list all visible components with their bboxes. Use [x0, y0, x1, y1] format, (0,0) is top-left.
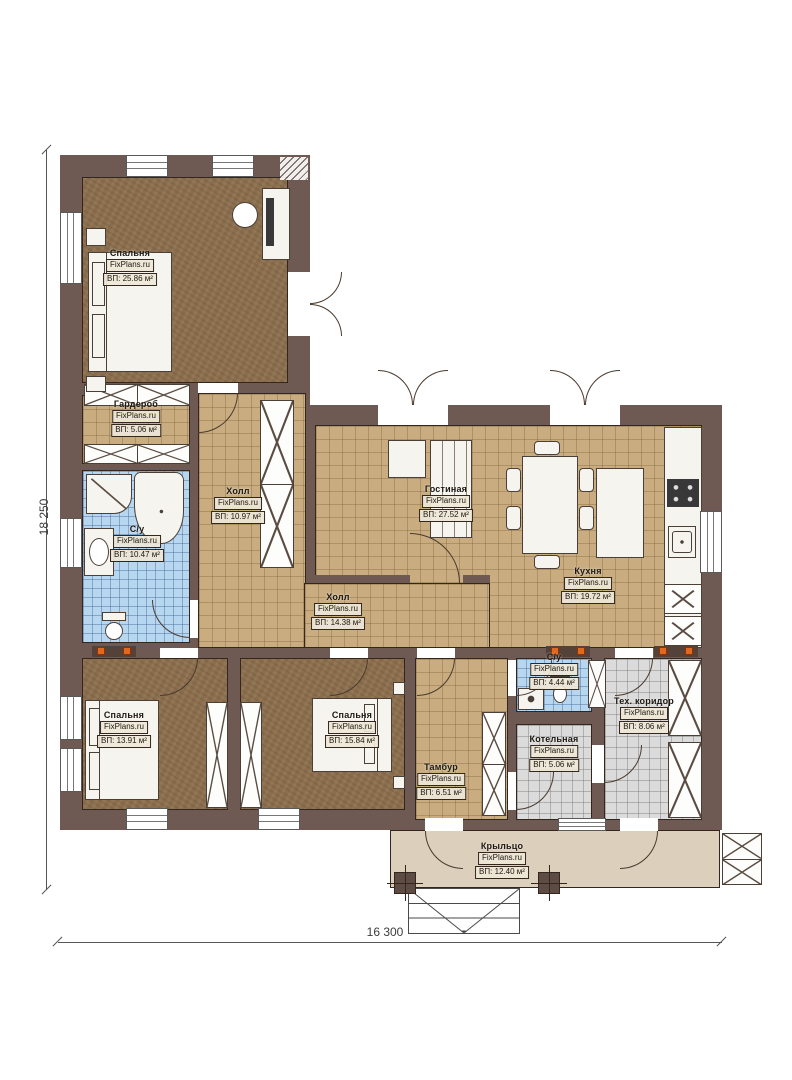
window [126, 155, 168, 177]
window [60, 518, 82, 568]
tv-unit [388, 440, 426, 478]
room-label-boiler-room: Котельная FixPlans.ru ВП: 5.06 м² [529, 734, 579, 772]
dimension-line-bottom [58, 942, 722, 943]
radiator [92, 646, 136, 657]
room-area: ВП: 12.40 м² [475, 866, 529, 879]
toilet-tank [102, 612, 126, 621]
door-opening [190, 600, 198, 638]
chair [506, 506, 521, 530]
window [258, 808, 300, 830]
closet [482, 712, 506, 816]
wall-living-hall-right [463, 575, 490, 583]
closet [240, 702, 262, 808]
closet [206, 702, 228, 808]
french-door-opening [550, 405, 620, 425]
watermark: FixPlans.ru [112, 410, 160, 423]
chair [534, 555, 560, 569]
room-area: ВП: 5.06 м² [529, 759, 579, 772]
nightstand [393, 776, 405, 789]
watermark: FixPlans.ru [478, 852, 526, 865]
pillow [89, 752, 100, 790]
room-name: Крыльцо [475, 841, 529, 851]
door-opening [615, 648, 653, 658]
appliance [664, 584, 702, 614]
door-opening [417, 648, 455, 658]
room-area: ВП: 19.72 м² [561, 591, 615, 604]
door-arc [378, 370, 413, 405]
kitchen-island [596, 468, 644, 558]
window [60, 212, 82, 284]
door-arc [310, 272, 342, 304]
window [212, 155, 254, 177]
watermark: FixPlans.ru [328, 721, 376, 734]
door-arc [413, 370, 448, 405]
window [558, 818, 606, 831]
watermark: FixPlans.ru [564, 577, 612, 590]
french-door-opening [288, 272, 310, 336]
dimension-label-bottom: 16 300 [340, 925, 430, 939]
dimension-label-left: 18 250 [37, 489, 51, 545]
room-name: Тех. коридор [614, 696, 674, 706]
monitor [266, 198, 274, 246]
room-name: Тамбур [416, 762, 466, 772]
room-label-bathroom-main: С/у FixPlans.ru ВП: 10.47 м² [110, 524, 164, 562]
window [700, 511, 722, 573]
door-opening [160, 648, 198, 658]
room-label-kitchen: Кухня FixPlans.ru ВП: 19.72 м² [561, 566, 615, 604]
closet [84, 444, 190, 464]
room-label-porch: Крыльцо FixPlans.ru ВП: 12.40 м² [475, 841, 529, 879]
chair [232, 202, 258, 228]
room-label-hall-top: Холл FixPlans.ru ВП: 10.97 м² [211, 486, 265, 524]
porch-ramp [722, 833, 762, 885]
room-area: ВП: 25.86 м² [103, 273, 157, 286]
french-door-opening [378, 405, 448, 425]
room-label-bedroom-bottom-middle: Спальня FixPlans.ru ВП: 15.84 м² [325, 710, 379, 748]
room-name: Кухня [561, 566, 615, 576]
door-arc [585, 370, 620, 405]
door-opening [198, 383, 238, 393]
entrance-door-opening [425, 818, 463, 831]
room-label-vestibule: Тамбур FixPlans.ru ВП: 6.51 м² [416, 762, 466, 800]
room-label-living-room: Гостиная FixPlans.ru ВП: 27.52 м² [419, 484, 473, 522]
room-area: ВП: 14.38 м² [311, 617, 365, 630]
room-label-hall-middle: Холл FixPlans.ru ВП: 14.38 м² [311, 592, 365, 630]
room-area: ВП: 10.97 м² [211, 511, 265, 524]
toilet [105, 622, 123, 640]
room-name: Холл [311, 592, 365, 602]
room-area: ВП: 15.84 м² [325, 735, 379, 748]
watermark: FixPlans.ru [113, 535, 161, 548]
room-area: ВП: 27.52 м² [419, 509, 473, 522]
wall-living-hall-left [315, 575, 410, 583]
door-opening [330, 648, 368, 658]
door-opening [592, 745, 604, 783]
sink [89, 538, 109, 566]
porch-column [394, 872, 416, 894]
porch-side-door-opening [620, 818, 658, 831]
room-label-bedroom-bottom-left: Спальня FixPlans.ru ВП: 13.91 м² [97, 710, 151, 748]
room-area: ВП: 10.47 м² [110, 549, 164, 562]
appliance [664, 616, 702, 646]
door-arc [310, 304, 342, 336]
room-area: ВП: 4.44 м² [529, 677, 579, 690]
nightstand [86, 228, 106, 246]
dining-table [522, 456, 578, 554]
stove [667, 479, 699, 507]
watermark: FixPlans.ru [214, 497, 262, 510]
room-label-tech-corridor: Тех. коридор FixPlans.ru ВП: 8.06 м² [614, 696, 674, 734]
watermark: FixPlans.ru [314, 603, 362, 616]
room-area: ВП: 8.06 м² [619, 721, 669, 734]
room-label-wardrobe: Гардероб FixPlans.ru ВП: 5.06 м² [111, 399, 161, 437]
chair [579, 506, 594, 530]
closet [668, 742, 702, 818]
room-area: ВП: 13.91 м² [97, 735, 151, 748]
nightstand [393, 682, 405, 695]
shaft [588, 660, 606, 708]
door-opening [508, 660, 516, 696]
room-name: Холл [211, 486, 265, 496]
room-name: Котельная [529, 734, 579, 744]
chair [534, 441, 560, 455]
room-name: Гостиная [419, 484, 473, 494]
watermark: FixPlans.ru [422, 495, 470, 508]
window [126, 808, 168, 830]
chair [579, 468, 594, 492]
watermark: FixPlans.ru [106, 259, 154, 272]
shower [86, 474, 132, 514]
room-name: Спальня [325, 710, 379, 720]
porch-column [538, 872, 560, 894]
door-arc [550, 370, 585, 405]
watermark: FixPlans.ru [530, 745, 578, 758]
floor-plan-canvas: Спальня FixPlans.ru ВП: 25.86 м² Гардеро… [0, 0, 792, 1080]
watermark: FixPlans.ru [100, 721, 148, 734]
watermark: FixPlans.ru [530, 663, 578, 676]
radiator [654, 646, 698, 657]
watermark: FixPlans.ru [620, 707, 668, 720]
room-label-bathroom-small: С/у FixPlans.ru ВП: 4.44 м² [529, 652, 579, 690]
room-name: Спальня [103, 248, 157, 258]
wall-corner-hatch [280, 157, 308, 180]
kitchen-sink-basin [672, 531, 692, 553]
room-area: ВП: 5.06 м² [111, 424, 161, 437]
window [60, 748, 82, 792]
window [60, 696, 82, 740]
closet [260, 400, 294, 568]
door-opening [508, 772, 516, 810]
nightstand [86, 376, 106, 392]
room-name: С/у [110, 524, 164, 534]
pillow [92, 314, 105, 358]
room-label-bedroom-top-left: Спальня FixPlans.ru ВП: 25.86 м² [103, 248, 157, 286]
watermark: FixPlans.ru [417, 773, 465, 786]
room-name: Гардероб [111, 399, 161, 409]
chair [506, 468, 521, 492]
room-area: ВП: 6.51 м² [416, 787, 466, 800]
room-name: С/у [529, 652, 579, 662]
room-name: Спальня [97, 710, 151, 720]
